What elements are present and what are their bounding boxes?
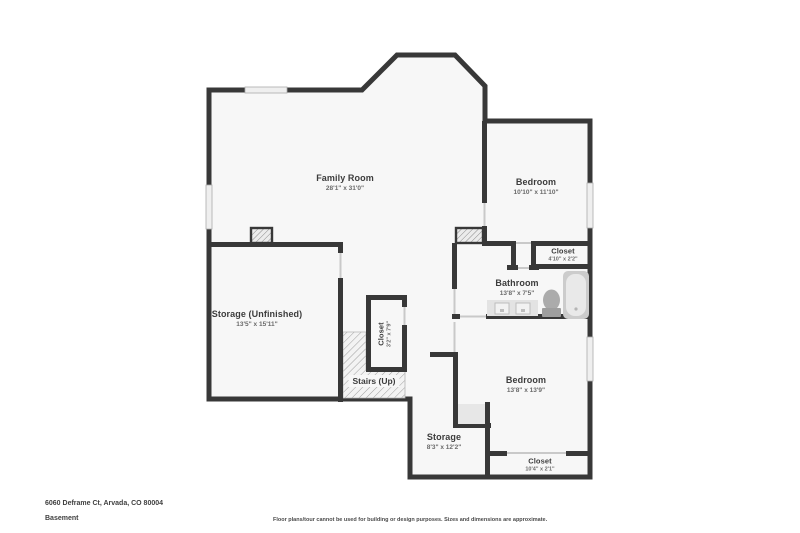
room-dims: 10'4" x 2'1": [525, 466, 554, 473]
room-label-closet-3: Closet 10'4" x 2'1": [525, 457, 554, 474]
room-label-closet-1: Closet 4'10" x 2'2": [548, 247, 577, 264]
room-dims: 13'5" x 15'11": [212, 321, 303, 329]
room-name: Bedroom: [506, 375, 546, 387]
property-address: 6060 Deframe Ct, Arvada, CO 80004: [45, 500, 163, 507]
floor-plan-drawing: [0, 0, 800, 533]
disclaimer-text: Floor plans/tour cannot be used for buil…: [273, 517, 547, 523]
room-name: Family Room: [316, 173, 374, 185]
room-dims: 13'8" x 13'9": [506, 387, 546, 395]
room-name: Closet: [377, 321, 387, 347]
room-name: Storage: [427, 432, 462, 444]
window-family-left: [206, 185, 212, 229]
room-dims: 4'10" x 2'2": [548, 256, 577, 263]
floor-level-label: Basement: [45, 515, 78, 522]
room-dims: 8'3" x 12'2": [427, 444, 462, 452]
vanity-sinks: [487, 300, 538, 316]
window-bedroom1-right: [587, 183, 593, 228]
toilet: [542, 290, 561, 318]
room-label-bathroom: Bathroom 13'8" x 7'5": [495, 278, 538, 298]
room-label-bedroom-2: Bedroom 13'8" x 13'9": [506, 375, 546, 395]
room-name: Bedroom: [513, 177, 558, 189]
bathtub: [563, 271, 589, 319]
room-name: Closet: [525, 457, 554, 467]
room-name: Stairs (Up): [353, 376, 396, 386]
room-label-stairs: Stairs (Up): [349, 375, 400, 387]
floor-plan-page: Family Room 28'1" x 31'0" Bedroom 10'10"…: [0, 0, 800, 533]
room-dims: 10'10" x 11'10": [513, 189, 558, 197]
room-label-storage-unfinished: Storage (Unfinished) 13'5" x 15'11": [212, 309, 303, 329]
room-label-family-room: Family Room 28'1" x 31'0": [316, 173, 374, 193]
window-family-top: [245, 87, 287, 93]
room-label-closet-2: Closet 3'2" x 7'9": [377, 321, 394, 347]
room-label-bedroom-1: Bedroom 10'10" x 11'10": [513, 177, 558, 197]
room-name: Storage (Unfinished): [212, 309, 303, 321]
room-name: Bathroom: [495, 278, 538, 290]
bedroom2-entry-alcove: [458, 404, 485, 424]
room-label-storage-2: Storage 8'3" x 12'2": [427, 432, 462, 452]
room-dims: 28'1" x 31'0": [316, 185, 374, 193]
room-name: Closet: [548, 247, 577, 257]
room-dims: 3'2" x 7'9": [386, 321, 393, 347]
window-bedroom2-right: [587, 337, 593, 381]
room-dims: 13'8" x 7'5": [495, 290, 538, 298]
